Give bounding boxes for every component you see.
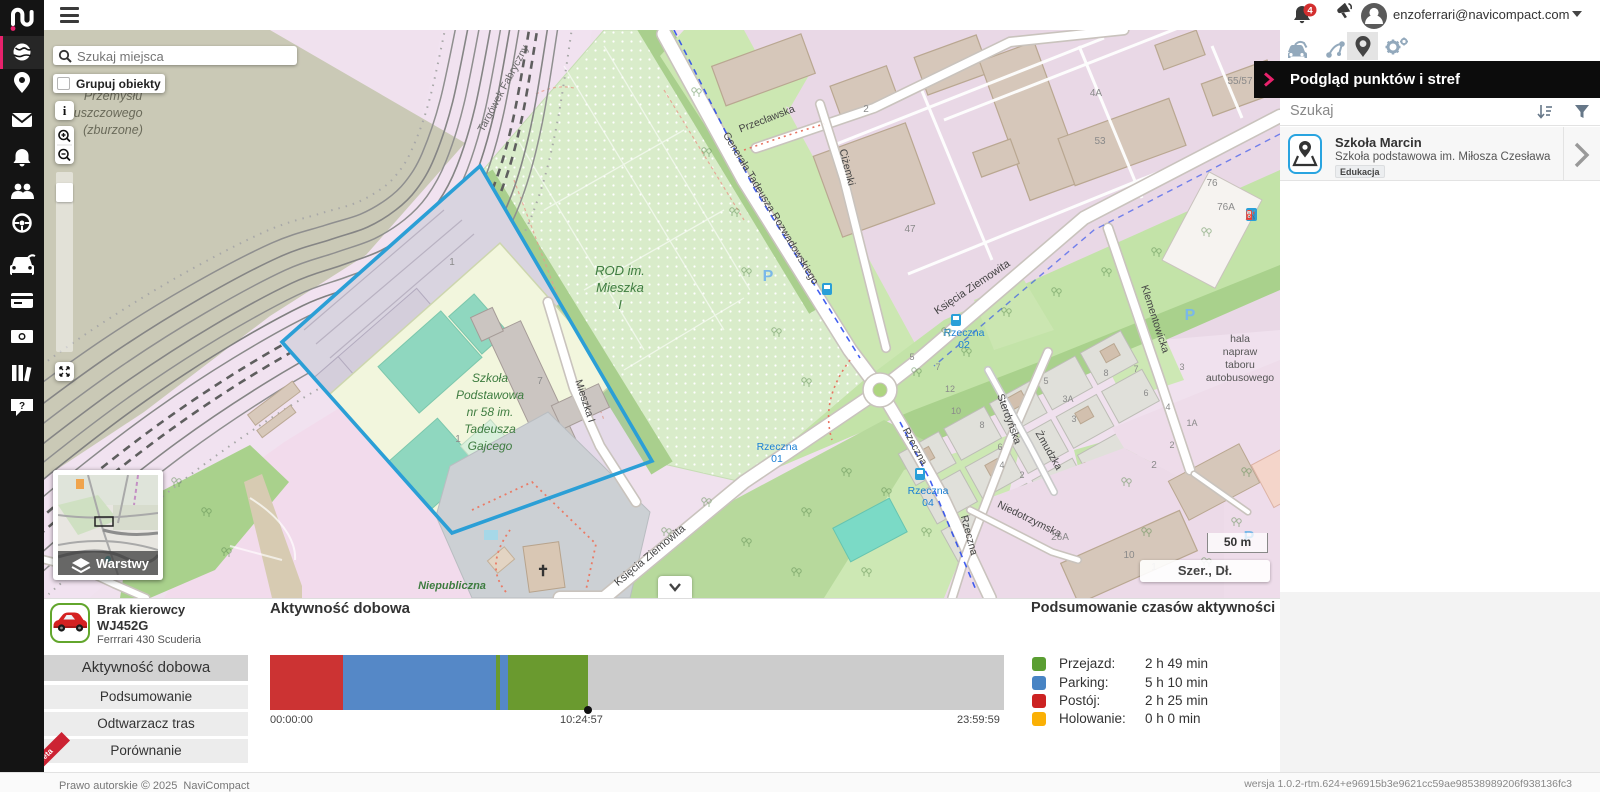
svg-text:P: P: [1185, 307, 1196, 324]
svg-text:Niepubliczna: Niepubliczna: [418, 580, 486, 592]
svg-text:1: 1: [449, 257, 455, 268]
svg-text:04: 04: [922, 497, 934, 509]
svg-text:2: 2: [863, 104, 869, 115]
svg-text:Szkoła: Szkoła: [472, 371, 508, 385]
svg-text:Podstawowa: Podstawowa: [456, 388, 524, 402]
svg-text:Warstwy: Warstwy: [96, 556, 150, 571]
svg-text:Rzeczna: Rzeczna: [908, 485, 949, 497]
svg-text:5: 5: [1043, 376, 1048, 386]
svg-text:76A: 76A: [1217, 202, 1235, 213]
svg-text:P: P: [763, 268, 774, 285]
svg-text:7: 7: [935, 362, 940, 372]
svg-text:53: 53: [1094, 136, 1106, 147]
svg-text:47: 47: [904, 224, 916, 235]
svg-text:8: 8: [1103, 368, 1108, 378]
svg-text:?: ?: [19, 401, 25, 412]
svg-text:napraw: napraw: [1223, 346, 1258, 358]
svg-text:26A: 26A: [1051, 532, 1069, 543]
svg-text:7: 7: [1133, 364, 1138, 374]
svg-text:Tadeusza: Tadeusza: [464, 422, 516, 436]
svg-text:2: 2: [1019, 470, 1024, 480]
svg-text:hala: hala: [1230, 333, 1250, 345]
svg-text:autobusowego: autobusowego: [1206, 372, 1274, 384]
svg-text:nr 58 im.: nr 58 im.: [467, 405, 514, 419]
svg-text:6: 6: [997, 442, 1002, 452]
svg-text:(zburzone): (zburzone): [83, 123, 143, 137]
svg-text:10: 10: [1123, 550, 1135, 561]
svg-text:4A: 4A: [1090, 88, 1103, 99]
svg-text:01: 01: [771, 453, 783, 465]
svg-text:✝: ✝: [537, 563, 550, 580]
svg-text:2: 2: [1169, 440, 1174, 450]
svg-text:4: 4: [1307, 6, 1313, 17]
svg-text:1: 1: [455, 434, 461, 445]
svg-text:3A: 3A: [1062, 394, 1073, 404]
svg-text:ROD im.: ROD im.: [595, 263, 645, 278]
svg-text:Mieszka: Mieszka: [596, 280, 644, 295]
svg-text:6: 6: [1143, 388, 1148, 398]
svg-text:4: 4: [1165, 402, 1170, 412]
svg-text:4: 4: [999, 460, 1004, 470]
svg-text:2: 2: [1151, 460, 1157, 471]
svg-text:taboru: taboru: [1225, 359, 1255, 371]
svg-text:⛽: ⛽: [1245, 209, 1256, 220]
svg-text:7: 7: [537, 376, 543, 387]
svg-text:3: 3: [1071, 414, 1076, 424]
svg-text:12: 12: [945, 384, 955, 394]
svg-text:Tłuszczowego: Tłuszczowego: [63, 106, 142, 120]
svg-text:10: 10: [951, 406, 961, 416]
svg-text:55/57: 55/57: [1227, 76, 1252, 87]
svg-text:5: 5: [909, 352, 914, 362]
svg-text:I: I: [618, 297, 622, 312]
svg-text:3: 3: [1179, 362, 1184, 372]
svg-text:Rzeczna: Rzeczna: [757, 441, 798, 453]
svg-text:76: 76: [1206, 178, 1218, 189]
svg-text:1A: 1A: [1186, 418, 1197, 428]
svg-text:Gajcego: Gajcego: [468, 439, 513, 453]
svg-text:8: 8: [979, 420, 984, 430]
